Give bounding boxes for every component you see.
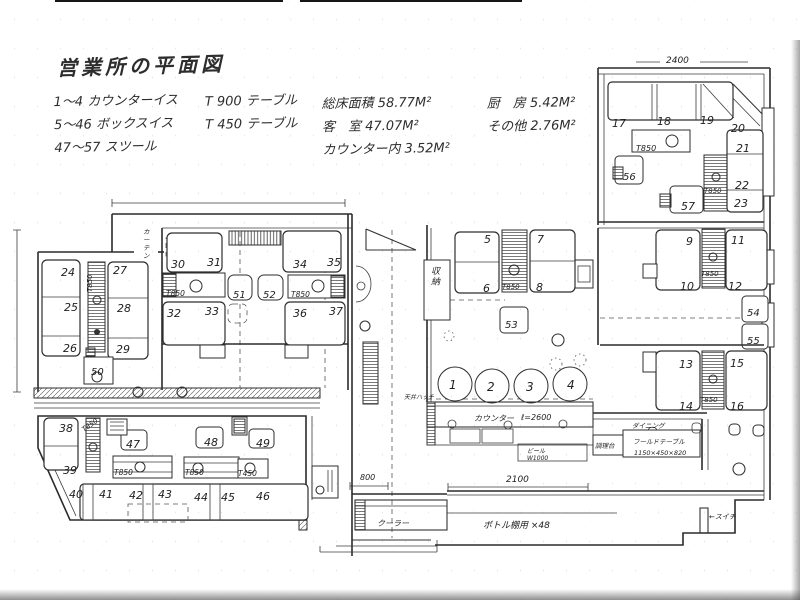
- table-label: T850: [114, 468, 133, 477]
- seat-label-39: 39: [63, 464, 77, 477]
- seat-label-56: 56: [623, 172, 636, 183]
- seat-label-42: 42: [129, 489, 143, 502]
- seat-label-7: 7: [537, 233, 544, 246]
- table-label: T850: [185, 468, 204, 477]
- seat-label-24: 24: [61, 266, 75, 279]
- cooler-label: クーラー: [377, 519, 410, 528]
- counter-area: [424, 230, 593, 461]
- area-line: カウンター内 3.52M²: [322, 137, 450, 162]
- floor-plan-scan: 1234567891011121314151617181920212223242…: [0, 0, 800, 600]
- legend-line: 5〜46 ボックスイス: [54, 112, 179, 137]
- table-label: T450: [238, 469, 257, 478]
- table-label: T850: [86, 274, 94, 292]
- seat-label-17: 17: [612, 117, 626, 130]
- seat-label-31: 31: [207, 256, 221, 269]
- switch-wall-stub: [700, 508, 708, 533]
- table-strip-t850: [704, 155, 728, 211]
- seat-label-28: 28: [117, 302, 131, 315]
- table-label: T850: [291, 290, 310, 299]
- seat-label-35: 35: [327, 256, 341, 269]
- seat-label-32: 32: [167, 307, 181, 320]
- seat-label-41: 41: [99, 488, 113, 501]
- hatch-label: 天井ハッチ: [404, 393, 435, 401]
- seat-label-21: 21: [736, 142, 750, 155]
- seat-label-49: 49: [256, 437, 270, 450]
- room-upper-left: [163, 231, 345, 358]
- seat-label-6: 6: [483, 282, 490, 295]
- legend-line: 1〜4 カウンターイス: [53, 89, 178, 114]
- storage-label: 収納: [431, 266, 441, 288]
- seat-label-53: 53: [505, 320, 518, 331]
- seat-label-30: 30: [171, 258, 185, 271]
- seat-label-23: 23: [734, 197, 748, 210]
- seat-label-1: 1: [449, 378, 457, 392]
- seat-label-33: 33: [205, 305, 219, 318]
- seat-label-43: 43: [158, 488, 172, 501]
- seat-label-34: 34: [293, 258, 307, 271]
- beer-width-label: W1000: [527, 455, 548, 462]
- seat-label-44: 44: [194, 491, 208, 504]
- table-label: T850: [701, 270, 719, 278]
- area-line: 厨 房 5.42M²: [487, 91, 576, 116]
- table-strip-t850: [702, 229, 725, 288]
- seat-label-27: 27: [113, 264, 127, 277]
- seat-label-52: 52: [263, 290, 276, 301]
- seat-label-54: 54: [747, 308, 760, 319]
- seat-label-45: 45: [221, 491, 235, 504]
- seat-label-4: 4: [567, 378, 575, 392]
- seat-label-29: 29: [116, 343, 130, 356]
- seat-label-15: 15: [730, 357, 744, 370]
- legend-line: 47〜57 スツール: [54, 135, 179, 160]
- seat-label-40: 40: [69, 488, 83, 501]
- area-figures-2: 厨 房 5.42M²その他 2.76M²: [487, 91, 576, 139]
- seat-label-47: 47: [126, 438, 140, 451]
- bottle-shelf-label: ボトル棚用 ×48: [483, 520, 550, 531]
- seat-label-46: 46: [256, 490, 270, 503]
- seat-label-38: 38: [59, 422, 73, 435]
- legend-seats: 1〜4 カウンターイス5〜46 ボックスイス47〜57 スツール: [53, 89, 178, 160]
- dim-800: 800: [360, 473, 375, 482]
- dim-2400: 2400: [666, 56, 689, 66]
- seat-label-11: 11: [731, 234, 745, 247]
- prep-table-label: 調理台: [595, 442, 615, 450]
- fold-table-label: フールドテーブル: [633, 438, 685, 446]
- fold-table-size-label: 1150×450×820: [634, 449, 686, 457]
- table-label: T850: [700, 396, 718, 404]
- beer-label: ビール: [527, 448, 546, 455]
- chair: [753, 425, 764, 436]
- seat-label-57: 57: [681, 200, 695, 213]
- bench-13-14: [656, 351, 700, 410]
- area-line: 客 室 47.07M²: [322, 114, 450, 139]
- seat-label-22: 22: [735, 179, 749, 192]
- seat-label-3: 3: [526, 380, 534, 394]
- curtain-label: カーテン: [143, 228, 150, 260]
- counter-label: カウンター: [474, 414, 515, 423]
- seat-label-8: 8: [536, 281, 543, 294]
- seat-label-5: 5: [484, 233, 491, 246]
- table-label: T850: [636, 144, 656, 153]
- scan-shadow-right: [791, 40, 800, 600]
- seat-label-20: 20: [731, 122, 745, 135]
- dining-label: ダイニング: [632, 422, 666, 430]
- seat-label-51: 51: [233, 290, 246, 301]
- seat-label-10: 10: [680, 280, 694, 293]
- stool-ghost: [228, 304, 247, 323]
- seat-label-55: 55: [747, 336, 760, 347]
- corridor-cabinet: [363, 342, 378, 404]
- seat-label-37: 37: [329, 305, 343, 318]
- bench-5-6: [455, 232, 499, 293]
- legend-line: T 900 テーブル: [205, 89, 298, 114]
- seat-label-25: 25: [64, 301, 78, 314]
- seat-label-48: 48: [204, 436, 218, 449]
- seat-label-50: 50: [91, 367, 104, 378]
- scan-artifact-line: [300, 0, 522, 2]
- chair: [729, 424, 740, 435]
- seat-label-12: 12: [728, 280, 742, 293]
- page-title: 営業所の平面図: [57, 48, 226, 81]
- area-line: 総床面積 58.77M²: [321, 91, 449, 116]
- utility-box: [312, 466, 338, 498]
- backbar: [427, 427, 593, 445]
- area-line: その他 2.76M²: [487, 114, 576, 139]
- scan-shadow-bottom: [0, 589, 800, 600]
- table-label: T850: [166, 289, 185, 298]
- room-right-mid: [600, 229, 768, 410]
- switch-label: ←スイチ: [709, 513, 737, 521]
- seat-label-18: 18: [657, 115, 671, 128]
- area-figures-1: 総床面積 58.77M²客 室 47.07M²カウンター内 3.52M²: [321, 91, 450, 162]
- radiator: [229, 231, 281, 245]
- scan-artifact-line: [55, 0, 283, 2]
- dim-2100: 2100: [506, 475, 529, 485]
- seat-label-9: 9: [686, 235, 693, 248]
- table-label: T850: [704, 187, 722, 195]
- legend-tables: T 900 テーブルT 450 テーブル: [205, 89, 298, 137]
- seat-label-14: 14: [679, 400, 693, 413]
- counter-length-label: ℓ=2600: [520, 413, 551, 422]
- seat-label-16: 16: [730, 400, 744, 413]
- seat-label-2: 2: [487, 380, 495, 394]
- seat-label-13: 13: [679, 358, 693, 371]
- seat-label-19: 19: [700, 114, 714, 127]
- seat-label-26: 26: [63, 342, 77, 355]
- seat-label-36: 36: [293, 307, 307, 320]
- door-arc: [356, 266, 371, 302]
- table-label: T850: [502, 283, 520, 291]
- legend-line: T 450 テーブル: [205, 112, 298, 137]
